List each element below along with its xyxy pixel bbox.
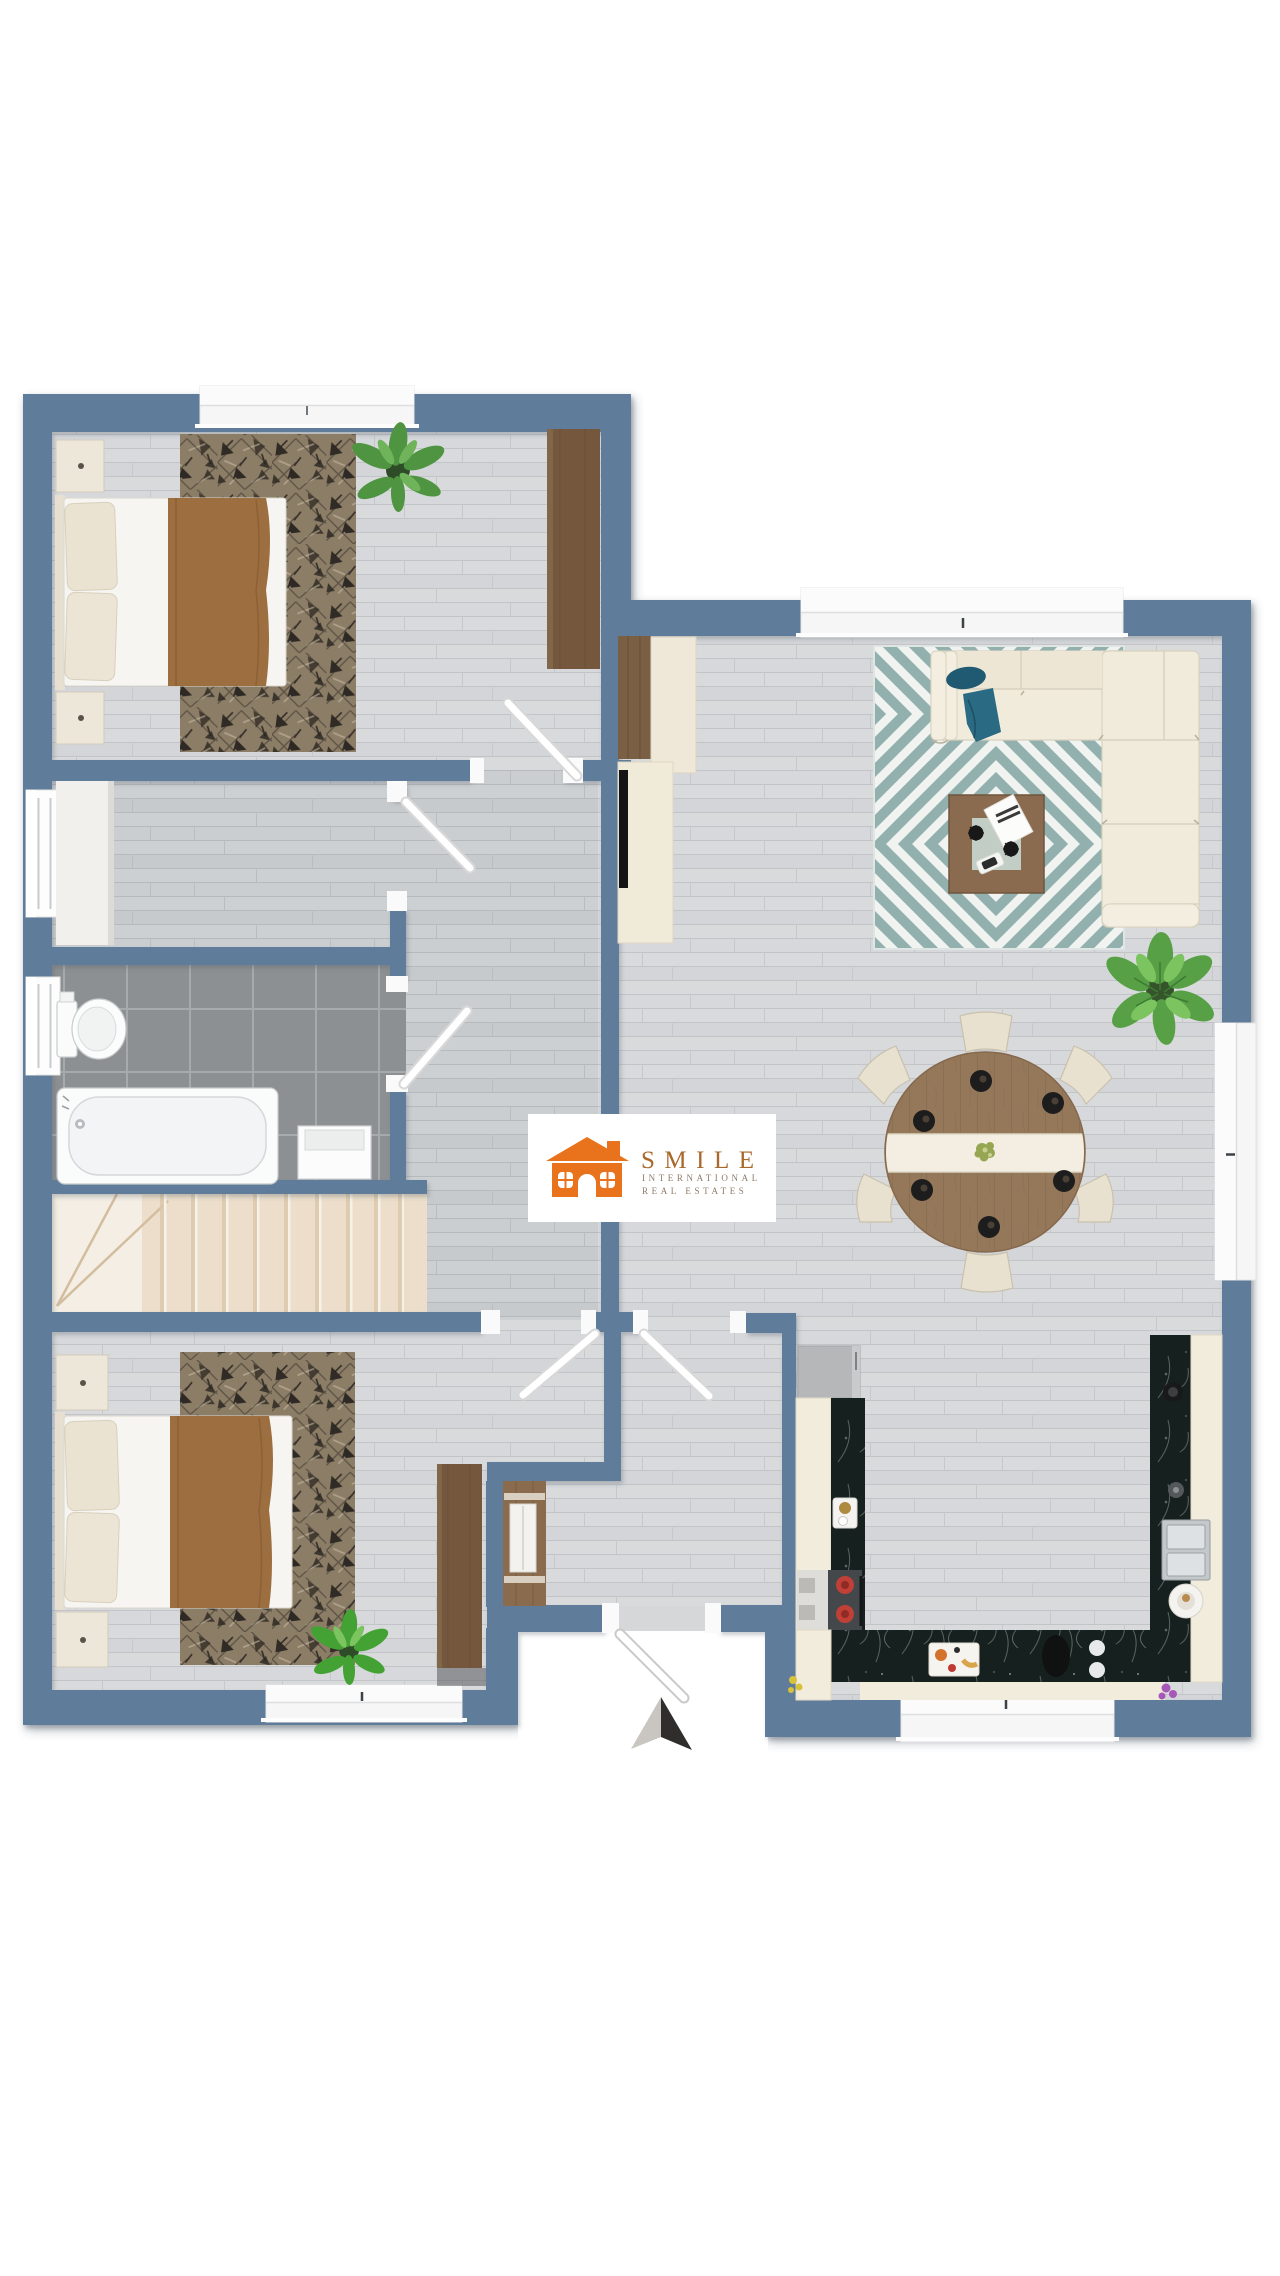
- svg-text:INTERNATIONAL: INTERNATIONAL: [642, 1173, 761, 1183]
- svg-text:SMILE: SMILE: [641, 1147, 764, 1174]
- svg-text:REAL ESTATES: REAL ESTATES: [642, 1186, 747, 1196]
